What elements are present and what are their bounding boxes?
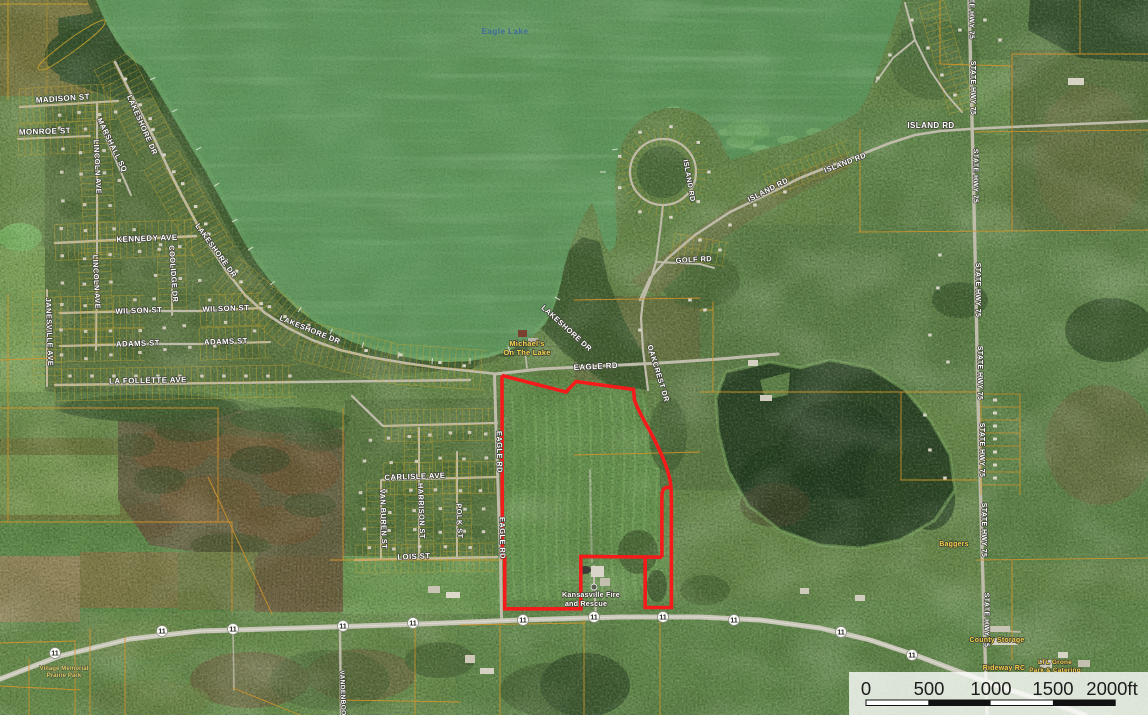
- svg-text:CARLISLE AVE: CARLISLE AVE: [384, 471, 445, 482]
- svg-text:1500: 1500: [1032, 678, 1073, 699]
- svg-text:LINCOLN AVE: LINCOLN AVE: [91, 254, 103, 309]
- svg-text:STATE HWY 75: STATE HWY 75: [980, 503, 987, 558]
- svg-text:11: 11: [158, 627, 166, 636]
- svg-text:STATE HWY 75: STATE HWY 75: [978, 423, 985, 478]
- svg-text:ADAMS ST: ADAMS ST: [204, 336, 248, 347]
- svg-text:STATE HWY 75: STATE HWY 75: [967, 0, 974, 39]
- svg-text:11: 11: [229, 625, 237, 634]
- svg-text:11: 11: [51, 649, 59, 658]
- svg-text:WILSON ST: WILSON ST: [115, 305, 162, 316]
- svg-text:1000: 1000: [970, 678, 1011, 699]
- svg-text:OAKCREST DR: OAKCREST DR: [645, 344, 671, 404]
- svg-text:LOIS ST: LOIS ST: [397, 551, 430, 561]
- svg-text:On The Lake: On The Lake: [503, 348, 550, 357]
- svg-text:500: 500: [914, 678, 945, 699]
- svg-text:KENNEDY AVE: KENNEDY AVE: [116, 233, 178, 244]
- svg-text:Village Memorial: Village Memorial: [40, 666, 89, 672]
- svg-text:Eagle Lake: Eagle Lake: [482, 27, 529, 36]
- svg-text:ISLAND RD: ISLAND RD: [907, 121, 954, 130]
- svg-text:STATE HWY 75: STATE HWY 75: [969, 61, 976, 116]
- svg-text:EAGLE RD: EAGLE RD: [573, 361, 618, 372]
- svg-text:ISLAND RD: ISLAND RD: [746, 176, 790, 204]
- svg-text:STATE HWY 75: STATE HWY 75: [976, 346, 983, 401]
- svg-text:VANDENBOOM: VANDENBOOM: [338, 670, 347, 715]
- svg-text:County Storage: County Storage: [970, 637, 1025, 644]
- svg-text:0: 0: [861, 678, 871, 699]
- svg-text:POLK ST: POLK ST: [454, 503, 464, 539]
- svg-text:11: 11: [659, 613, 667, 622]
- svg-text:LINCOLN AVE: LINCOLN AVE: [92, 139, 104, 194]
- svg-text:Baggers: Baggers: [939, 541, 968, 548]
- svg-text:COOLIDGE DR: COOLIDGE DR: [167, 245, 180, 303]
- svg-text:and Rescue: and Rescue: [565, 599, 607, 608]
- svg-text:Rideway RC: Rideway RC: [983, 665, 1025, 672]
- svg-text:STATE HWY 75: STATE HWY 75: [974, 263, 981, 318]
- svg-text:STATE HWY 75: STATE HWY 75: [971, 149, 978, 204]
- svg-text:WILSON ST: WILSON ST: [202, 303, 249, 314]
- svg-text:11: 11: [409, 619, 417, 628]
- svg-text:11: 11: [837, 628, 845, 637]
- svg-text:MONROE ST: MONROE ST: [19, 126, 71, 137]
- svg-text:EAGLE RD: EAGLE RD: [498, 517, 508, 559]
- svg-text:11: 11: [730, 616, 738, 625]
- svg-text:11: 11: [339, 622, 347, 631]
- svg-text:HARRISON ST: HARRISON ST: [416, 483, 427, 539]
- svg-text:11: 11: [908, 651, 916, 660]
- svg-text:Kansasville Fire: Kansasville Fire: [562, 590, 620, 599]
- svg-text:2000ft: 2000ft: [1086, 678, 1137, 699]
- svg-text:ADAMS ST: ADAMS ST: [116, 338, 160, 349]
- svg-text:LTL Grone: LTL Grone: [1038, 659, 1072, 666]
- svg-text:11: 11: [590, 613, 598, 622]
- svg-text:Michael's: Michael's: [509, 339, 544, 348]
- svg-text:VAN BUREN ST: VAN BUREN ST: [378, 489, 389, 550]
- svg-text:EAGLE RD: EAGLE RD: [495, 431, 505, 473]
- svg-text:LAKESHORE DR: LAKESHORE DR: [540, 303, 594, 353]
- svg-text:11: 11: [519, 616, 527, 625]
- svg-text:LA FOLLETTE AVE: LA FOLLETTE AVE: [109, 375, 187, 385]
- svg-text:Prairie Park: Prairie Park: [47, 673, 82, 679]
- svg-text:GOLF RD: GOLF RD: [675, 254, 712, 265]
